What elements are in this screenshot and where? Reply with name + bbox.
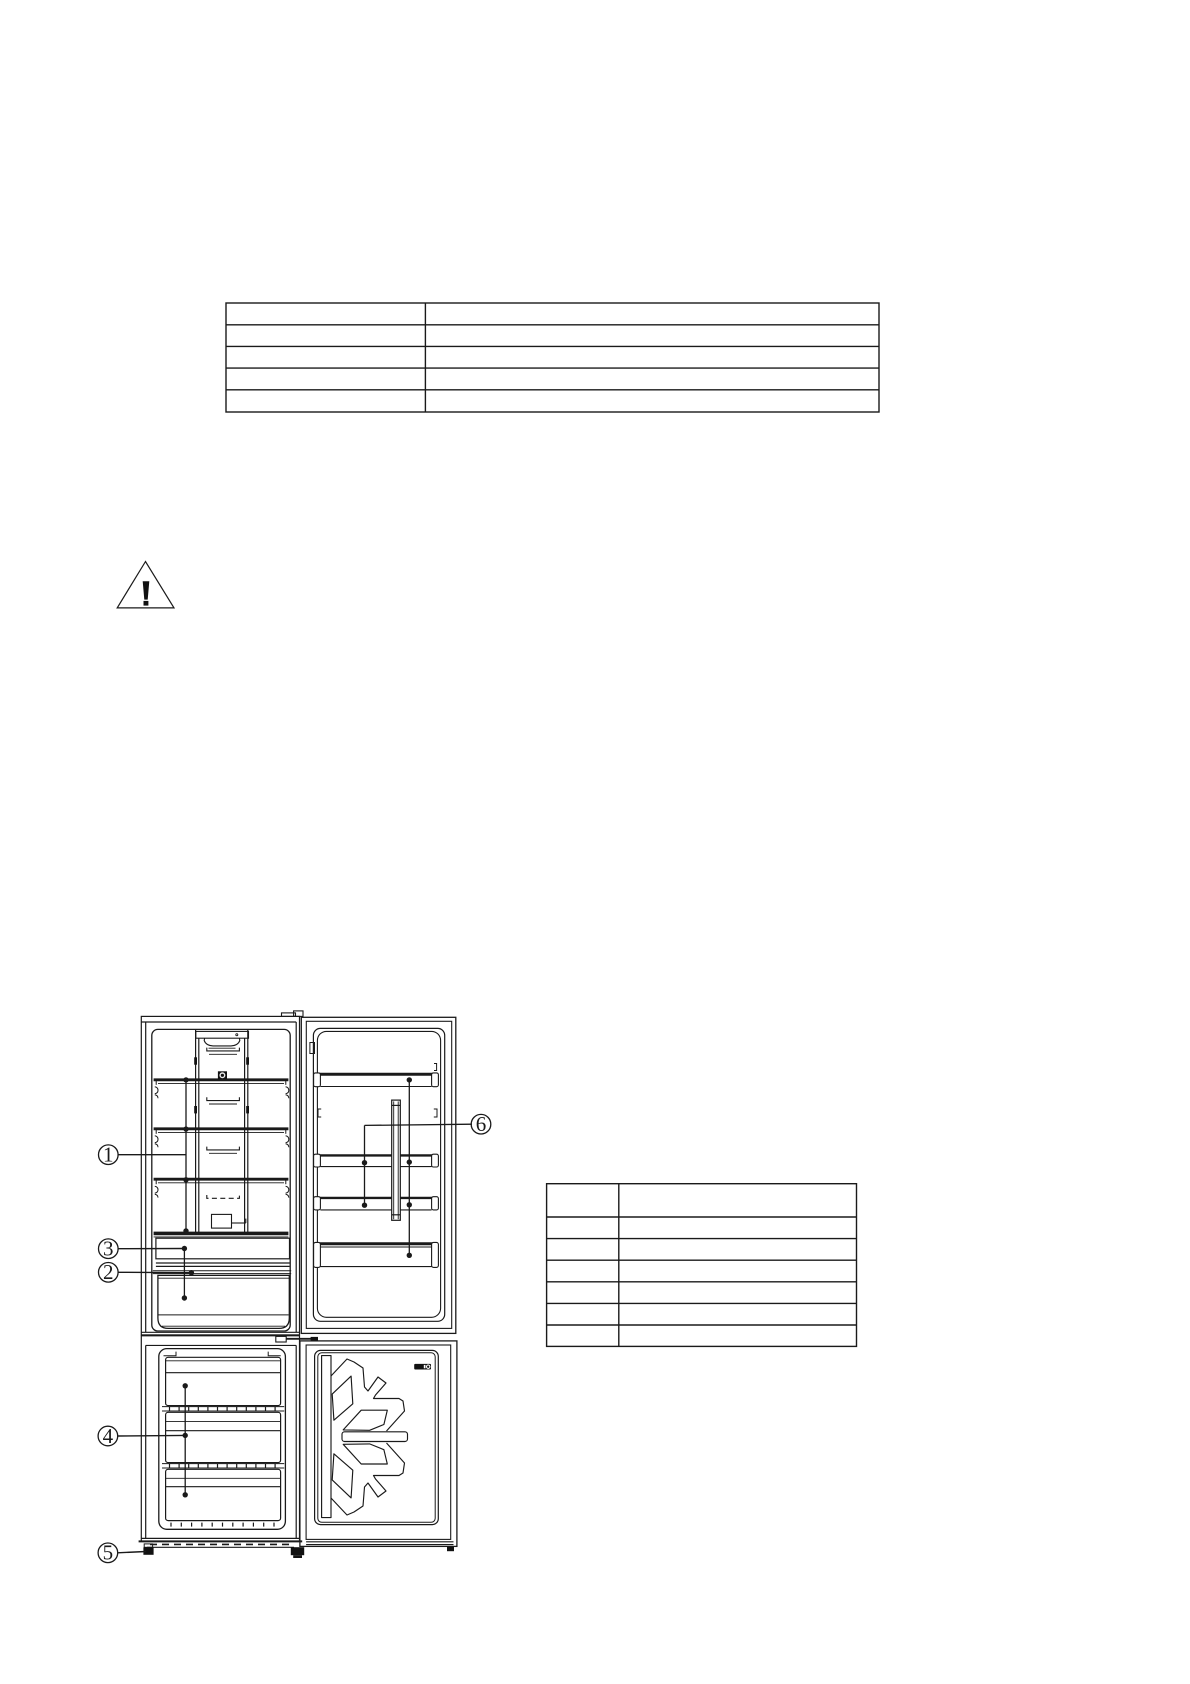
svg-text:3: 3: [103, 1237, 114, 1261]
svg-text:1: 1: [103, 1143, 114, 1167]
svg-text:4: 4: [103, 1424, 114, 1448]
svg-text:6: 6: [476, 1112, 487, 1136]
svg-text:2: 2: [103, 1260, 114, 1284]
svg-text:5: 5: [103, 1541, 114, 1565]
